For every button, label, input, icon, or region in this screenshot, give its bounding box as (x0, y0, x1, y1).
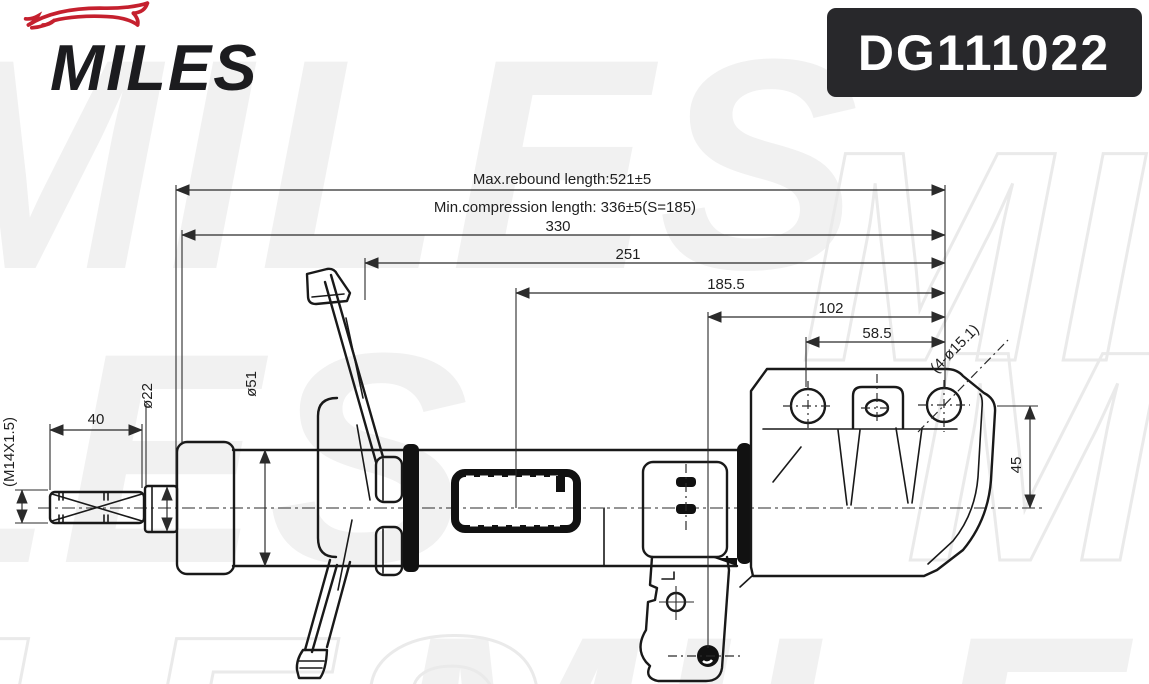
svg-text:LES: LES (0, 573, 547, 684)
dim-dia-51: ø51 (243, 371, 260, 397)
dim-330: 330 (545, 218, 570, 235)
dim-40: 40 (88, 411, 105, 428)
dim-58-5: 58.5 (862, 325, 891, 342)
dim-min-compression: Min.compression length: 336±5(S=185) (434, 199, 696, 216)
brand-name: MILES (50, 31, 259, 104)
technical-drawing: MILES MILES MILES MILES MI LES (0, 0, 1149, 684)
svg-text:MI: MI (905, 288, 1149, 624)
dim-185-5: 185.5 (707, 276, 745, 293)
part-number: DG111022 (858, 25, 1110, 81)
dim-251: 251 (615, 246, 640, 263)
dim-dia-22: ø22 (139, 383, 156, 409)
dim-thread: (M14X1.5) (1, 417, 18, 487)
dim-max-rebound: Max.rebound length:521±5 (473, 171, 651, 188)
seat-weld-ring (403, 444, 419, 572)
bump-stop-band (737, 443, 752, 564)
dim-45: 45 (1008, 457, 1025, 474)
catalog-drawing-page: MILES MILES MILES MILES MI LES (0, 0, 1149, 684)
part-number-badge: DG111022 (827, 8, 1142, 97)
dim-102: 102 (818, 300, 843, 317)
